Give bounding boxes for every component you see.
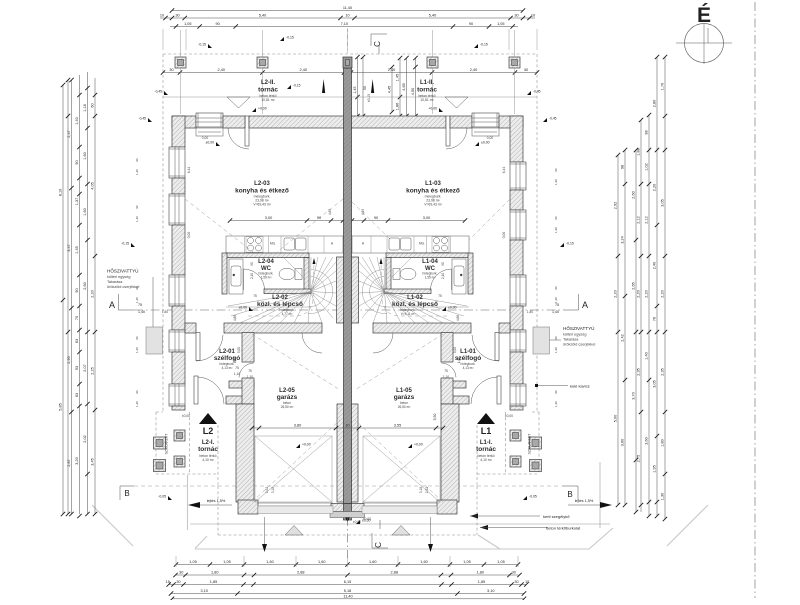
svg-text:2,75: 2,75 [637,455,641,462]
svg-text:1,85: 1,85 [210,580,217,584]
svg-text:90: 90 [554,216,558,220]
svg-text:6,15: 6,15 [344,580,351,584]
svg-text:2,87: 2,87 [67,459,71,466]
svg-text:4,86: 4,86 [456,315,460,321]
svg-text:4,50: 4,50 [411,88,415,95]
svg-text:4,86: 4,86 [233,315,237,321]
svg-text:63: 63 [75,339,79,343]
svg-text:1,40: 1,40 [552,310,559,314]
svg-text:26,50 m²: 26,50 m² [281,405,294,409]
svg-text:10: 10 [345,424,349,428]
svg-text:2,60: 2,60 [83,282,87,289]
svg-text:1,60: 1,60 [266,560,273,564]
svg-text:1,05: 1,05 [463,560,470,564]
svg-text:2,35: 2,35 [637,368,641,375]
svg-text:1,59 m²: 1,59 m² [425,276,436,280]
svg-text:2,40: 2,40 [218,68,225,72]
svg-text:2,88: 2,88 [297,571,304,575]
svg-text:+0,00: +0,00 [258,107,267,111]
svg-text:-0,45: -0,45 [549,117,557,121]
svg-text:2,20: 2,20 [661,290,665,297]
svg-text:90: 90 [135,390,139,394]
svg-text:90: 90 [554,336,558,340]
svg-text:10: 10 [345,14,349,18]
svg-text:30: 30 [514,580,518,584]
svg-text:10,81 m²: 10,81 m² [261,98,275,102]
svg-text:tornác: tornác [476,446,496,453]
svg-text:konyha és étkező: konyha és étkező [235,188,289,195]
svg-text:90: 90 [135,336,139,340]
svg-text:L2-04: L2-04 [258,259,274,265]
svg-text:10: 10 [160,14,164,18]
svg-text:2,92: 2,92 [614,202,618,209]
svg-text:2,52: 2,52 [425,487,429,494]
svg-text:1,20: 1,20 [135,347,139,353]
svg-text:3,45: 3,45 [91,458,95,465]
svg-text:1,60: 1,60 [420,560,427,564]
svg-text:1,85: 1,85 [478,580,485,584]
svg-text:±0,00: ±0,00 [182,414,190,418]
svg-text:0,00: 0,00 [487,136,494,140]
svg-text:2,10: 2,10 [250,273,254,279]
svg-text:4,65: 4,65 [328,209,332,215]
svg-text:1,95: 1,95 [653,465,657,472]
svg-text:4,10 m²: 4,10 m² [480,458,492,462]
svg-text:-0,15: -0,15 [198,43,206,47]
svg-text:1,80: 1,80 [527,310,533,314]
svg-text:98: 98 [621,165,625,169]
svg-text:1,20: 1,20 [135,297,139,303]
svg-text:-0,45: -0,45 [138,117,146,121]
svg-text:3,55: 3,55 [394,424,401,428]
svg-text:-0,45: -0,45 [154,90,162,94]
svg-text:75: 75 [248,369,252,373]
svg-text:2,25: 2,25 [91,367,95,374]
svg-text:93: 93 [75,366,79,370]
svg-text:2,02: 2,02 [83,435,87,442]
svg-text:1,30: 1,30 [661,493,665,500]
svg-text:1,20: 1,20 [554,347,558,353]
svg-text:beton térkőburkolat: beton térkőburkolat [546,526,581,531]
svg-text:5,40: 5,40 [429,14,436,18]
svg-text:1,20: 1,20 [554,401,558,407]
svg-text:Takarása: Takarása [107,280,123,284]
svg-text:4,13 m²: 4,13 m² [222,366,233,370]
svg-text:3,20: 3,20 [75,457,79,464]
svg-text:5,00: 5,00 [237,347,241,353]
svg-text:4,65: 4,65 [361,209,365,215]
svg-text:L2-II.: L2-II. [261,80,275,86]
svg-text:B: B [124,489,129,498]
svg-text:30: 30 [514,14,518,18]
svg-text:90: 90 [135,286,139,290]
svg-text:1,05: 1,05 [497,560,504,564]
svg-text:garázs: garázs [394,394,415,401]
svg-text:2,35: 2,35 [661,368,665,375]
svg-text:±0,00: ±0,00 [481,141,490,145]
svg-text:1,20: 1,20 [135,216,139,222]
svg-text:+0,00: +0,00 [302,443,311,447]
svg-text:L1-03: L1-03 [425,181,441,187]
svg-text:30: 30 [524,68,528,72]
svg-text:kulé kavics: kulé kavics [570,384,590,389]
svg-text:±0,00: ±0,00 [206,141,215,145]
svg-text:1,20: 1,20 [554,297,558,303]
svg-text:11,40: 11,40 [343,6,352,10]
svg-text:MG.: MG. [270,242,276,246]
svg-text:4,45: 4,45 [388,86,392,93]
svg-text:5,00: 5,00 [614,415,618,422]
svg-text:8,10: 8,10 [59,189,63,196]
svg-text:63: 63 [75,393,79,397]
svg-text:konyha és étkező: konyha és étkező [406,188,460,195]
svg-text:-0,05: -0,05 [158,495,166,499]
svg-text:90: 90 [75,288,79,292]
svg-text:V=9,11 m³: V=9,11 m³ [401,312,416,316]
svg-text:1,59 m²: 1,59 m² [261,276,272,280]
svg-text:1,05: 1,05 [497,22,504,26]
svg-text:1,45: 1,45 [353,87,357,94]
svg-text:3,70: 3,70 [632,392,636,399]
svg-text:±0,15: ±0,15 [367,94,371,102]
svg-text:5,18: 5,18 [344,589,351,593]
svg-text:30: 30 [176,580,180,584]
svg-text:3,60: 3,60 [621,439,625,446]
svg-text:1,37: 1,37 [75,198,79,205]
svg-text:0,00: 0,00 [202,136,209,140]
svg-text:3,10: 3,10 [487,589,494,593]
svg-text:4,13 m²: 4,13 m² [463,366,474,370]
svg-text:HŐSZIVATTYÚ: HŐSZIVATTYÚ [563,325,594,331]
svg-text:75: 75 [253,294,257,298]
svg-text:1,10: 1,10 [234,372,241,376]
svg-text:L1-04: L1-04 [422,259,438,265]
svg-text:90: 90 [135,205,139,209]
svg-text:SZIKLAKERT: SZIKLAKERT [165,434,169,455]
svg-text:75: 75 [444,369,448,373]
svg-text:90: 90 [135,158,139,162]
svg-text:1,45: 1,45 [75,246,79,253]
svg-text:3,05: 3,05 [653,380,657,387]
svg-text:1,20: 1,20 [554,227,558,233]
svg-text:30: 30 [175,14,179,18]
svg-text:örökzöld cserjékkel: örökzöld cserjékkel [563,343,595,347]
svg-text:1,00: 1,00 [233,357,237,363]
svg-text:30: 30 [179,571,183,575]
svg-text:±0,00: ±0,00 [448,306,457,310]
svg-text:1,88: 1,88 [637,148,641,155]
svg-text:2,10: 2,10 [441,273,445,279]
svg-text:3,10: 3,10 [201,589,208,593]
svg-text:30: 30 [169,68,173,72]
svg-text:2,42: 2,42 [621,334,625,341]
svg-text:±0,00: ±0,00 [505,414,513,418]
svg-text:90: 90 [374,216,378,220]
svg-text:3,00: 3,00 [265,216,272,220]
svg-text:15: 15 [166,580,170,584]
svg-text:90: 90 [216,22,220,26]
svg-text:2,20: 2,20 [91,290,95,297]
svg-text:2,40: 2,40 [653,262,657,269]
svg-text:L2: L2 [203,426,214,436]
svg-text:HŐSZIVATTYÚ: HŐSZIVATTYÚ [107,268,138,274]
svg-text:L1-II.: L1-II. [420,80,434,86]
svg-text:90: 90 [250,262,254,266]
svg-text:1,18: 1,18 [83,104,87,111]
svg-text:1,10: 1,10 [247,375,253,379]
svg-text:C: C [374,542,383,548]
svg-text:6,44: 6,44 [187,167,191,174]
svg-text:lejtés 1,5%: lejtés 1,5% [207,499,226,503]
svg-text:1,60: 1,60 [369,560,376,564]
svg-text:közl. és lépcső: közl. és lépcső [392,301,438,308]
svg-text:V=69,43 m³: V=69,43 m³ [424,203,442,207]
svg-text:tornác: tornác [258,87,278,94]
svg-text:3,18: 3,18 [419,487,423,494]
svg-text:2,40: 2,40 [388,68,395,72]
svg-text:2,88: 2,88 [391,571,398,575]
svg-text:90: 90 [554,390,558,394]
svg-text:1,45: 1,45 [396,74,400,81]
svg-text:15: 15 [525,580,529,584]
svg-text:2,60: 2,60 [632,191,636,198]
svg-text:3,60: 3,60 [645,437,649,444]
svg-text:tornác: tornác [417,87,437,94]
svg-text:76: 76 [653,317,657,321]
svg-text:B: B [567,490,572,499]
svg-text:közl. és lépcső: közl. és lépcső [257,301,303,308]
svg-text:1,80: 1,80 [661,439,665,446]
svg-text:MG.: MG. [419,242,425,246]
svg-text:6,44: 6,44 [502,167,506,174]
svg-text:7,10: 7,10 [341,22,348,26]
svg-text:11,40: 11,40 [343,594,352,598]
svg-text:1,60: 1,60 [83,208,87,215]
svg-text:2,20: 2,20 [653,184,657,191]
svg-text:4,05: 4,05 [91,182,95,189]
svg-text:L2-03: L2-03 [254,181,270,187]
svg-text:60: 60 [91,103,95,107]
svg-text:+0,00: +0,00 [428,107,437,111]
svg-text:2,20: 2,20 [637,290,641,297]
svg-text:1,40: 1,40 [138,310,145,314]
svg-text:1,20: 1,20 [135,169,139,175]
svg-text:±0,00: ±0,00 [363,517,371,521]
svg-text:98: 98 [645,130,649,134]
svg-text:1,02: 1,02 [645,163,649,170]
svg-text:Takarása: Takarása [563,338,579,342]
svg-text:1,05: 1,05 [184,22,191,26]
svg-text:1,70: 1,70 [661,83,665,90]
svg-text:2,65: 2,65 [632,282,636,289]
svg-text:2,40: 2,40 [300,68,307,72]
svg-text:1,80: 1,80 [477,571,484,575]
svg-text:2,40: 2,40 [470,68,477,72]
svg-text:±0,00: ±0,00 [239,306,248,310]
svg-text:3,18: 3,18 [271,487,275,494]
svg-text:4,65: 4,65 [402,83,406,90]
svg-text:90: 90 [554,286,558,290]
svg-text:1,40: 1,40 [645,352,649,359]
svg-text:kültéri egység: kültéri egység [563,333,586,337]
svg-text:75: 75 [438,294,442,298]
svg-text:2,80: 2,80 [653,100,657,107]
svg-text:90: 90 [469,22,473,26]
svg-text:2,90: 2,90 [67,356,71,363]
svg-text:4,10 m²: 4,10 m² [202,458,214,462]
svg-text:2,07: 2,07 [83,364,87,371]
svg-text:5,00: 5,00 [453,347,457,353]
svg-text:+0,00: +0,00 [414,443,423,447]
svg-text:1,80: 1,80 [211,571,218,575]
svg-text:2,20: 2,20 [645,290,649,297]
svg-text:1,20: 1,20 [135,401,139,407]
svg-text:L1: L1 [481,426,492,436]
svg-text:-0,15: -0,15 [566,242,574,246]
svg-text:SZIKLAKERT: SZIKLAKERT [528,434,532,455]
svg-text:2,12: 2,12 [645,216,649,223]
svg-text:10,81 m²: 10,81 m² [420,98,434,102]
svg-text:lejtés 1,5%: lejtés 1,5% [575,499,594,503]
svg-text:3,47: 3,47 [67,244,71,251]
svg-text:1,10: 1,10 [443,375,449,379]
svg-text:2,47: 2,47 [67,130,71,137]
svg-text:C: C [373,41,382,47]
svg-text:garázs: garázs [277,394,298,401]
svg-text:1,05: 1,05 [223,560,230,564]
svg-text:V=69,43 m³: V=69,43 m³ [253,203,271,207]
svg-text:tornác: tornác [198,446,218,453]
svg-text:-0,15: -0,15 [121,242,129,246]
svg-text:50: 50 [363,86,367,90]
svg-text:1,05: 1,05 [189,560,196,564]
svg-text:1,20: 1,20 [554,179,558,185]
svg-text:4,77 m²: 4,77 m² [282,312,293,316]
svg-text:1,00: 1,00 [457,357,461,363]
svg-text:-0,45: -0,45 [533,90,541,94]
svg-text:10: 10 [531,14,535,18]
svg-text:3,80: 3,80 [294,424,301,428]
svg-text:kerti szegélykő: kerti szegélykő [543,514,570,519]
svg-text:90: 90 [75,160,79,164]
svg-text:3,05: 3,05 [661,199,665,206]
svg-text:2,20: 2,20 [614,290,618,297]
svg-text:1,80: 1,80 [162,310,168,314]
svg-text:1,86: 1,86 [396,103,400,110]
svg-text:5,85: 5,85 [59,403,63,410]
svg-text:-0,15: -0,15 [480,43,488,47]
svg-text:90: 90 [441,262,445,266]
svg-text:A: A [109,300,115,310]
svg-text:2,12: 2,12 [637,216,641,223]
svg-text:A: A [582,300,588,310]
svg-text:1,40: 1,40 [75,117,79,124]
svg-text:2,52: 2,52 [265,487,269,494]
svg-text:1,60: 1,60 [318,560,325,564]
svg-text:1,60: 1,60 [83,152,87,159]
svg-text:70: 70 [75,316,79,320]
svg-text:5,40: 5,40 [259,14,266,18]
svg-text:-0,05: -0,05 [529,495,537,499]
svg-text:kültéri egység: kültéri egység [107,275,130,279]
svg-text:3,24: 3,24 [621,236,625,243]
svg-text:26,50 m²: 26,50 m² [398,405,411,409]
svg-text:90: 90 [554,168,558,172]
svg-text:5,50: 5,50 [433,414,437,421]
svg-text:-0,15: -0,15 [293,84,301,88]
svg-text:30: 30 [512,571,516,575]
svg-text:0,00: 0,00 [187,232,191,239]
svg-text:-0,15: -0,15 [286,36,294,40]
svg-text:3,00: 3,00 [423,216,430,220]
svg-text:0,00: 0,00 [502,232,506,239]
svg-text:75: 75 [235,366,239,370]
